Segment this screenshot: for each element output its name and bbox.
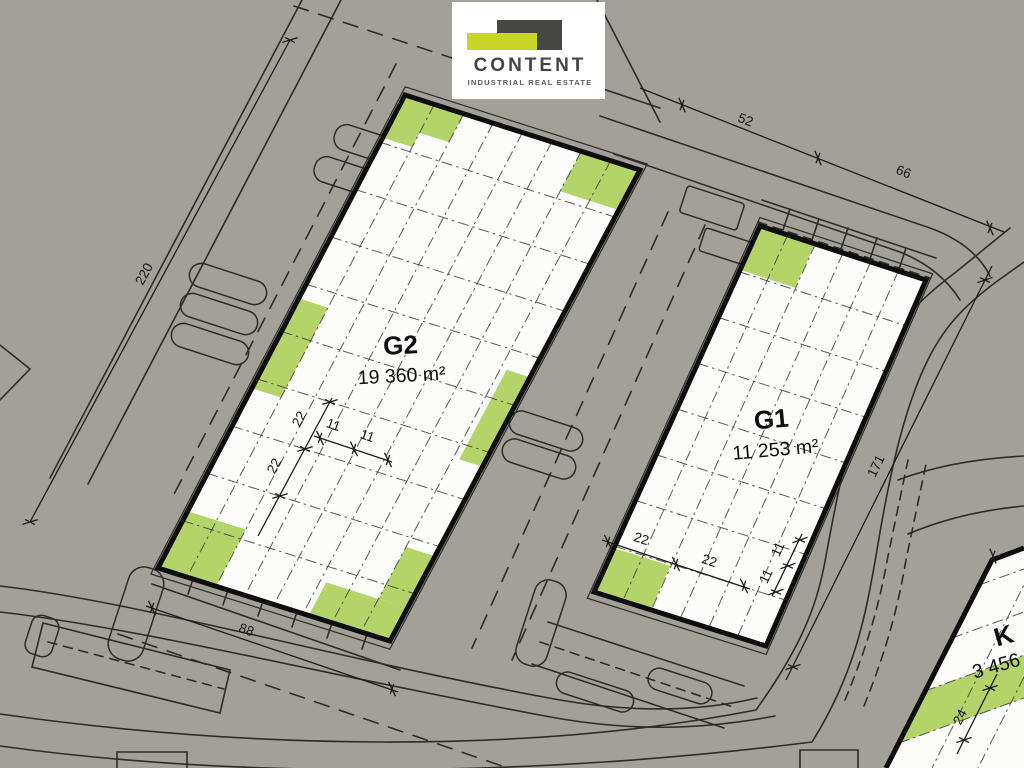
building-label: G1 [753,403,790,436]
logo-mark-lime-icon [467,33,537,50]
building-label: G2 [382,329,418,361]
logo-brand-text: CONTENT [474,55,587,76]
site-plan: G219 360 m² G111 253 m² K3 456 220526688… [0,0,1024,768]
logo-tagline-text: INDUSTRIAL REAL ESTATE [468,78,593,87]
logo-card: CONTENT INDUSTRIAL REAL ESTATE [452,2,605,99]
building-area: 19 360 m² [357,363,446,390]
